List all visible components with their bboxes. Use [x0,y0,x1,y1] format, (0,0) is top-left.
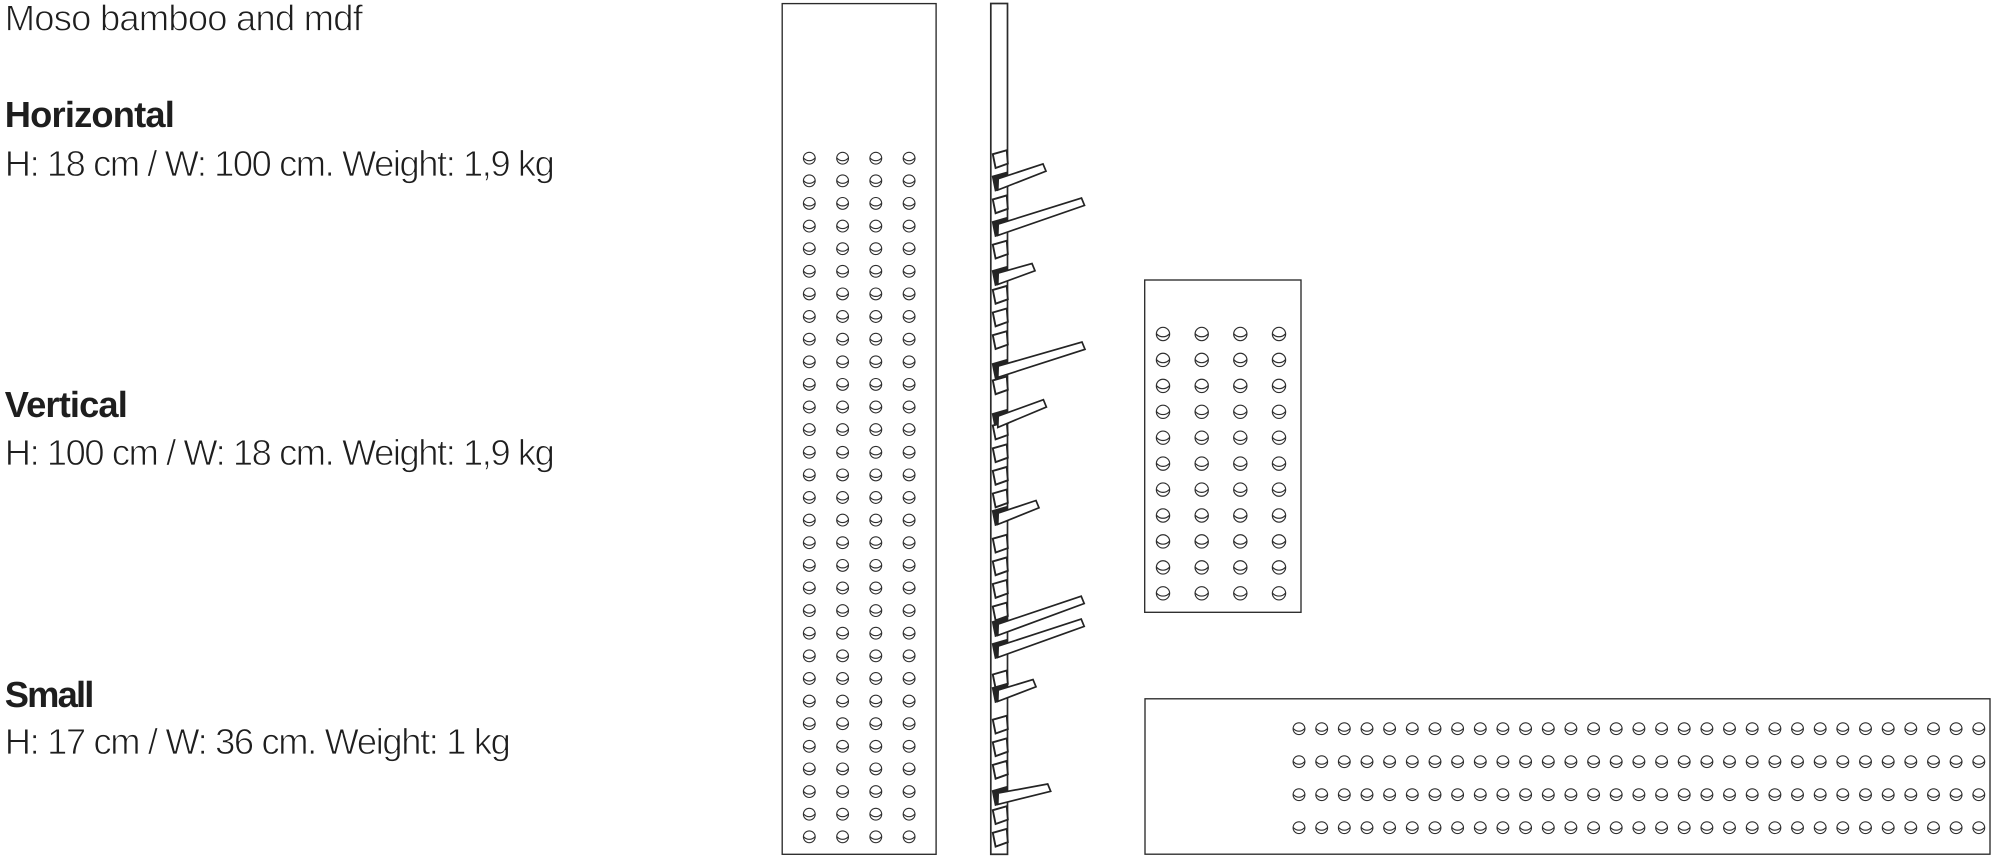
svg-text:H: 17 cm / W: 36 cm. Weight: 1: H: 17 cm / W: 36 cm. Weight: 1 kg [5,721,511,762]
svg-text:Small: Small [5,674,95,715]
svg-text:Vertical: Vertical [5,384,128,425]
svg-text:H: 18 cm / W: 100 cm. Weight:: H: 18 cm / W: 100 cm. Weight: 1,9 kg [5,143,555,184]
svg-text:H: 100 cm / W: 18 cm. Weight:: H: 100 cm / W: 18 cm. Weight: 1,9 kg [5,432,555,473]
svg-text:Horizontal: Horizontal [5,94,175,135]
svg-text:Moso bamboo and mdf: Moso bamboo and mdf [5,0,364,39]
